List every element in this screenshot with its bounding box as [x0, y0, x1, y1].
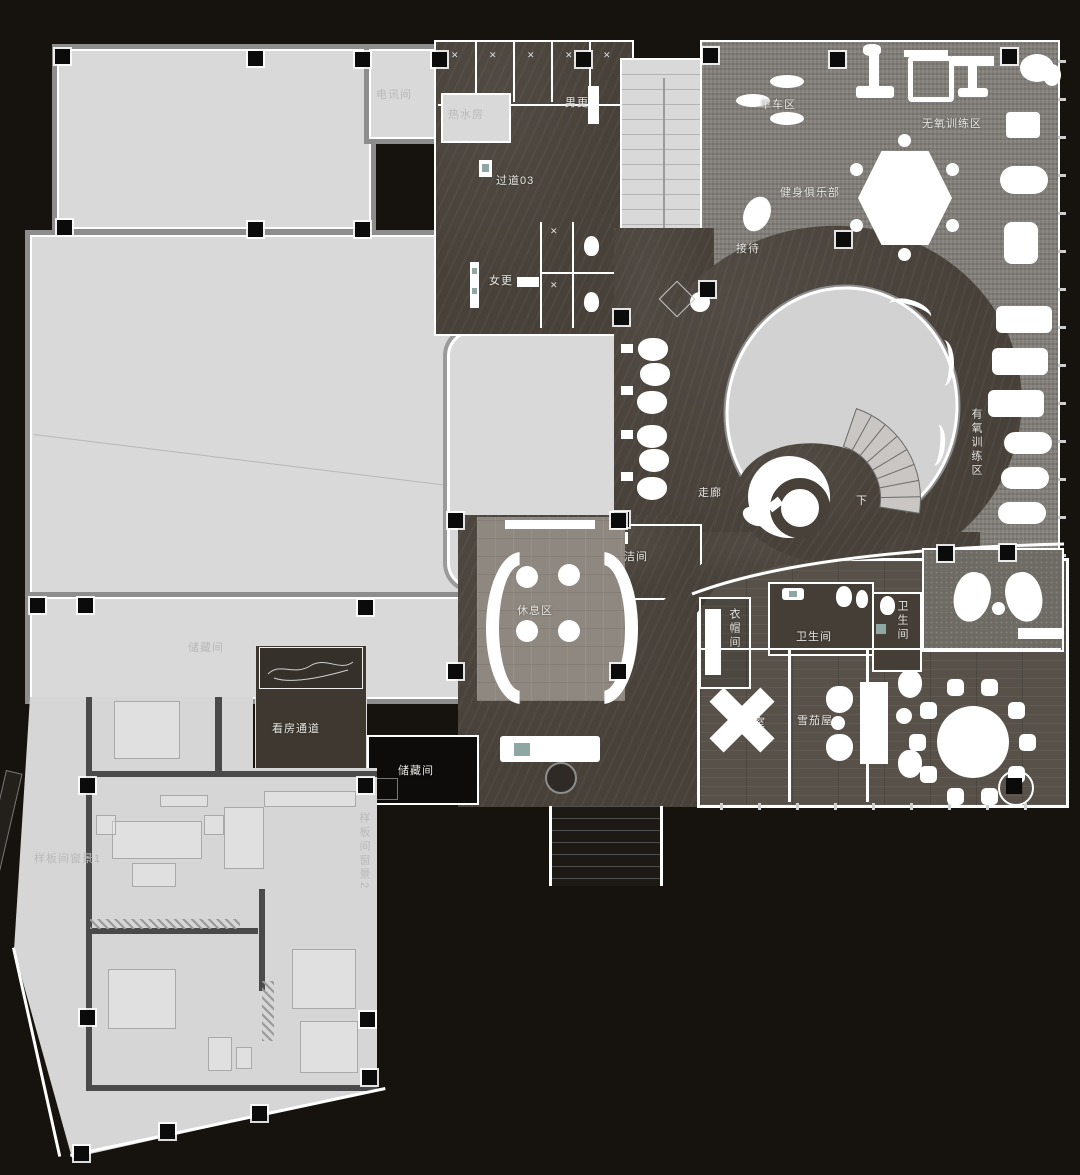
floor-plan: 电讯间 储藏间 ✕ ✕ ✕ ✕ ✕ 热水房 男更 过道03 女更 ✕ ✕	[0, 0, 1080, 1175]
cigar-room-label: 雪茄屋	[797, 712, 833, 728]
entrance-stairs	[549, 806, 663, 886]
shower-icon: ✕	[489, 50, 497, 61]
column	[448, 664, 463, 679]
side-table	[896, 708, 912, 724]
swirl-decor-icon	[260, 648, 360, 686]
column	[358, 778, 373, 793]
bed-outline	[108, 969, 176, 1029]
column	[836, 232, 851, 247]
wall	[699, 648, 1061, 650]
bed-outline	[114, 701, 180, 759]
column	[938, 546, 953, 561]
dining-chair	[1008, 702, 1025, 719]
toilet-icon	[584, 236, 599, 256]
column	[448, 513, 463, 528]
gym-machine-icon	[968, 64, 977, 90]
armchair-outline	[204, 815, 224, 835]
rest-area-label: 休息区	[517, 602, 553, 618]
dining-chair	[947, 788, 964, 805]
bike-zone-label: 单车区	[760, 96, 796, 112]
wardrobe-hatch	[90, 919, 240, 929]
gym-machine-icon	[908, 56, 954, 102]
side-table	[992, 602, 1005, 615]
hexagon-knob	[898, 248, 911, 261]
bed-outline	[300, 1021, 358, 1073]
room-top-left-hall	[57, 49, 371, 229]
armchair-icon	[898, 750, 922, 778]
gym-machine-icon	[958, 88, 988, 97]
column	[614, 310, 629, 325]
column	[30, 598, 45, 613]
sideboard	[860, 682, 888, 764]
sofa-outline	[112, 821, 202, 859]
booth-table	[621, 386, 633, 395]
room-telecom-label: 电讯间	[376, 86, 412, 102]
cloakroom-label: 衣帽间	[726, 608, 742, 650]
hexagon-knob	[850, 219, 863, 232]
gym-machine-icon	[1043, 64, 1061, 86]
toilet-main-label: 卫生间	[796, 628, 832, 644]
column	[830, 52, 845, 67]
toilet-icon	[584, 292, 599, 312]
booth-seat	[637, 425, 667, 448]
wall	[788, 650, 791, 802]
treadmill-icon	[996, 306, 1052, 333]
wall	[86, 771, 377, 777]
gym-chair-icon	[1004, 222, 1038, 264]
column	[248, 51, 263, 66]
wall	[215, 697, 222, 775]
aerobic-label: 有氧训练区	[968, 408, 984, 478]
booth-table	[621, 472, 633, 481]
column	[252, 1106, 267, 1121]
armchair-icon	[826, 686, 853, 713]
column	[703, 48, 718, 63]
elliptical-icon	[1001, 467, 1049, 489]
column-circled	[998, 770, 1034, 806]
hexagon-knob	[946, 163, 959, 176]
bath-fixture-outline	[236, 1047, 252, 1069]
dining-chair	[920, 702, 937, 719]
column	[611, 513, 626, 528]
window-ticks-bottom	[720, 803, 1050, 810]
spin-bike-icon	[770, 75, 804, 88]
dining-table-outline	[224, 807, 264, 869]
armchair-icon	[898, 670, 922, 698]
bench-press-icon	[1006, 112, 1040, 138]
hexagon-knob	[850, 163, 863, 176]
column	[362, 1070, 377, 1085]
dining-chair	[981, 788, 998, 805]
womens-change-label: 女更	[489, 272, 513, 288]
shelf	[470, 262, 479, 308]
dining-chair	[909, 734, 926, 751]
toilet-small-label: 卫生间	[894, 600, 910, 642]
rest-bench	[505, 520, 595, 529]
plant-icon	[514, 743, 530, 756]
booth-seat	[640, 363, 670, 386]
fixture	[479, 160, 492, 177]
column	[160, 1124, 175, 1139]
roller-icon	[1000, 166, 1048, 194]
fitness-club-label: 健身俱乐部	[780, 184, 840, 200]
room-storage-hall	[30, 597, 462, 699]
gym-machine-icon	[863, 44, 881, 56]
stool	[558, 620, 580, 642]
side-table	[831, 716, 845, 730]
dining-chair	[981, 679, 998, 696]
model-view2-label: 样板间窗景2	[356, 812, 372, 891]
spin-bike-icon	[770, 112, 804, 125]
column	[57, 220, 72, 235]
hexagon-knob	[898, 134, 911, 147]
toilet-icon	[880, 596, 895, 615]
column	[74, 1146, 89, 1161]
column	[80, 778, 95, 793]
column	[358, 600, 373, 615]
elliptical-icon	[998, 502, 1046, 524]
gym-machine-icon	[904, 50, 948, 57]
column	[1000, 545, 1015, 560]
anaerobic-label: 无氧训练区	[922, 115, 982, 131]
cloak-shelf	[705, 609, 721, 675]
column	[55, 49, 70, 64]
hexagon-knob	[946, 219, 959, 232]
sink-icon	[782, 588, 804, 600]
shower-icon: ✕	[451, 50, 459, 61]
stool	[516, 620, 538, 642]
armchair-icon	[826, 734, 853, 761]
feature-wall	[259, 647, 363, 689]
treadmill-icon	[992, 348, 1048, 375]
column	[360, 1012, 375, 1027]
hot-water-label: 热水房	[448, 106, 484, 122]
stool	[516, 566, 538, 588]
room-left-hall	[30, 235, 460, 599]
column	[1002, 49, 1017, 64]
model-view1-label: 样板间窗景1	[34, 850, 101, 866]
stair-rail	[663, 78, 665, 235]
booth-seat	[637, 391, 667, 414]
locker-cabinet	[588, 86, 599, 124]
elliptical-icon	[1004, 432, 1052, 454]
column	[248, 222, 263, 237]
column	[355, 52, 370, 67]
reception-label: 接待	[736, 240, 760, 256]
dining-chair	[920, 766, 937, 783]
mens-change-label: 男更	[565, 94, 589, 110]
corridor03-label: 过道03	[496, 172, 534, 188]
booth-seat	[639, 449, 669, 472]
kitchen-island-outline	[264, 791, 356, 807]
bench	[517, 277, 539, 287]
wardrobe-hatch	[262, 981, 274, 1041]
column	[700, 282, 715, 297]
corridor-label: 走廊	[698, 484, 722, 500]
booth-table	[621, 430, 633, 439]
down-label: 下	[856, 492, 868, 508]
booth-seat	[638, 338, 668, 361]
bed-outline	[292, 949, 356, 1009]
shower-icon: ✕	[565, 50, 573, 61]
column	[576, 52, 591, 67]
booth-table	[621, 344, 633, 353]
column	[611, 664, 626, 679]
decor-arc	[933, 340, 954, 386]
bath-fixture-outline	[208, 1037, 232, 1071]
coffee-table-outline	[132, 863, 176, 887]
toilet-icon	[856, 590, 868, 608]
shower-icon: ✕	[603, 50, 611, 61]
shower-icon: ✕	[527, 50, 535, 61]
wall	[86, 697, 92, 1091]
wall	[259, 889, 265, 991]
armchair-outline	[96, 815, 116, 835]
toilet-icon	[836, 586, 852, 607]
floor-medallion	[545, 762, 577, 794]
dining-table	[937, 706, 1009, 778]
column	[80, 1010, 95, 1025]
column	[355, 222, 370, 237]
tv-outline	[160, 795, 208, 807]
dining-chair	[947, 679, 964, 696]
booth-seat	[637, 477, 667, 500]
wall	[86, 1085, 377, 1091]
console	[1018, 628, 1064, 639]
storage-dark-label: 储藏间	[398, 762, 434, 778]
stool	[558, 564, 580, 586]
dining-chair	[1019, 734, 1036, 751]
fixture-teal	[876, 624, 886, 634]
column	[78, 598, 93, 613]
storage-left-label: 储藏间	[188, 639, 224, 655]
column	[432, 52, 447, 67]
viewing-passage-label: 看房通道	[272, 720, 320, 736]
treadmill-icon	[988, 390, 1044, 417]
